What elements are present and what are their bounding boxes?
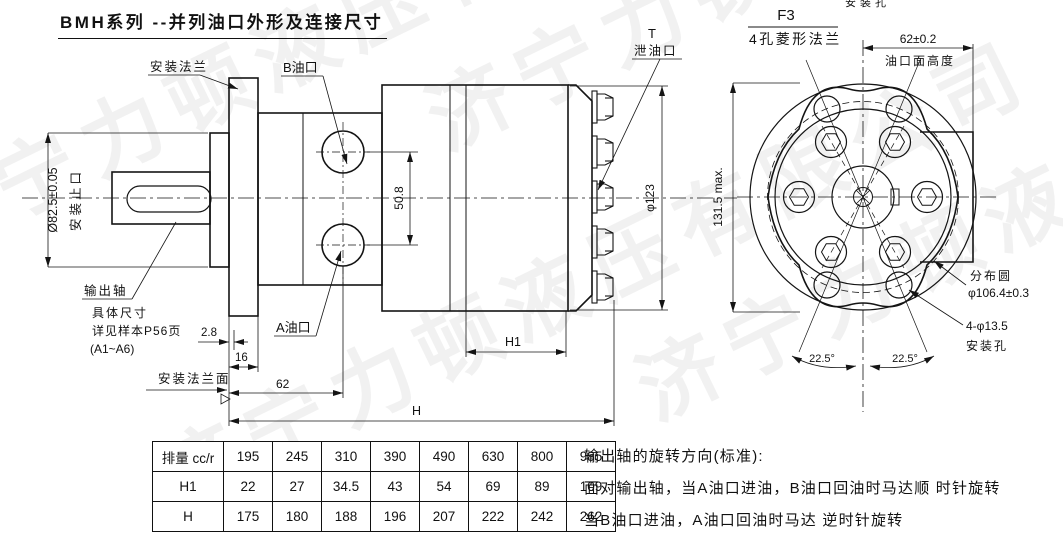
rotation-note-line3: 当B油口进油，A油口回油时马达 逆时针旋转 [584,505,1062,537]
shaft-note-line2: 详见样本P56页 [92,323,181,338]
a-port-label: A油口 [276,320,311,335]
mount-holes-dim: 4-φ13.5 [966,319,1008,333]
output-shaft-label: 输出轴 [84,283,128,298]
dim-16: 16 [235,352,248,364]
t-label: T [648,26,656,41]
displacement-dimension-table: 排量 cc/r 195 245 310 390 490 630 800 985 … [152,441,616,532]
dist-circle-name: 分布圆 [970,269,1012,283]
spigot-dia-dim: Ø82.5±0.05 [46,167,60,232]
table-cell: 195 [224,442,273,472]
front-view: F3 4孔菱形法兰 安装孔 62±0.2 油口面高度 131.5 max. 分布… [711,0,1029,412]
table-cell: 390 [371,442,420,472]
drain-port-label: 泄油口 [634,44,678,58]
rear-bolts [592,91,613,303]
table-cell: H1 [153,472,224,502]
table-cell: 490 [420,442,469,472]
dim-h1: H1 [505,335,521,349]
table-cell: 89 [518,472,567,502]
angle-left-dim: 22.5° [809,353,835,365]
clipped-top-label: 安装孔 [845,0,890,9]
table-row: 排量 cc/r 195 245 310 390 490 630 800 985 [153,442,616,472]
side-view: 安装法兰 B油口 A油口 T 泄油口 输出轴 具体尺寸 详见样本P56页 (A1… [22,26,737,426]
table-cell: 196 [371,502,420,532]
height-max-dim: 131.5 max. [711,167,725,226]
port-block-shape [258,113,382,285]
table-cell: 34.5 [322,472,371,502]
rotation-note-line1: 输出轴的旋转方向(标准): [584,441,1062,473]
shaft-note-line3: (A1~A6) [90,342,134,356]
table-cell: 54 [420,472,469,502]
table-cell: 245 [273,442,322,472]
port-face-dim: 62±0.2 [900,32,937,46]
mount-holes-name: 安装孔 [966,338,1008,353]
dim-2-8: 2.8 [201,327,217,339]
flange-code-label: F3 [777,7,795,24]
mount-flange-label: 安装法兰 [150,59,208,74]
table-cell: 排量 cc/r [153,442,224,472]
shaft-note-line1: 具体尺寸 [92,306,148,320]
output-shaft-shape [112,133,229,267]
table-cell: 207 [420,502,469,532]
table-cell: 188 [322,502,371,532]
table-cell: 630 [469,442,518,472]
table-row: H1 22 27 34.5 43 54 69 89 109 [153,472,616,502]
table-cell: 22 [224,472,273,502]
mount-flange-shape [229,78,258,316]
front-view-labels: F3 4孔菱形法兰 安装孔 62±0.2 油口面高度 131.5 max. 分布… [711,0,1029,368]
angle-right-dim: 22.5° [892,353,918,365]
spigot-name-label: 安装止口 [68,169,83,231]
mount-face-label: 安装法兰面 [158,371,231,386]
flange-name-label: 4孔菱形法兰 [749,31,842,47]
table-cell: 800 [518,442,567,472]
table-row: H 175 180 188 196 207 222 242 262 [153,502,616,532]
rotation-direction-note: 输出轴的旋转方向(标准): 面对输出轴，当A油口进油，B油口回油时马达顺 时针旋… [584,441,1062,537]
body-dia-dim: φ123 [643,184,657,212]
page-title: BMH系列 --并列油口外形及连接尺寸 [58,8,387,39]
table-cell: 69 [469,472,518,502]
catalog-page: 济宁力顿液压有限公司 济宁力顿液压有限公司 济宁力顿液压有限公司 济宁力顿液压有… [0,0,1063,547]
table-cell: 27 [273,472,322,502]
dim-h: H [412,404,421,418]
port-face-name: 油口面高度 [885,53,955,68]
port-spacing-dim: 50.8 [392,186,406,210]
b-port-label: B油口 [283,60,318,75]
table-cell: 43 [371,472,420,502]
rotation-note-line2: 面对输出轴，当A油口进油，B油口回油时马达顺 时针旋转 [584,473,1062,505]
table-cell: 310 [322,442,371,472]
table-cell: 175 [224,502,273,532]
table-cell: 222 [469,502,518,532]
table-cell: 242 [518,502,567,532]
dist-circle-dim: φ106.4±0.3 [968,286,1029,300]
table-cell: H [153,502,224,532]
table-cell: 180 [273,502,322,532]
dim-62: 62 [276,377,290,391]
front-view-centerlines [737,40,997,412]
